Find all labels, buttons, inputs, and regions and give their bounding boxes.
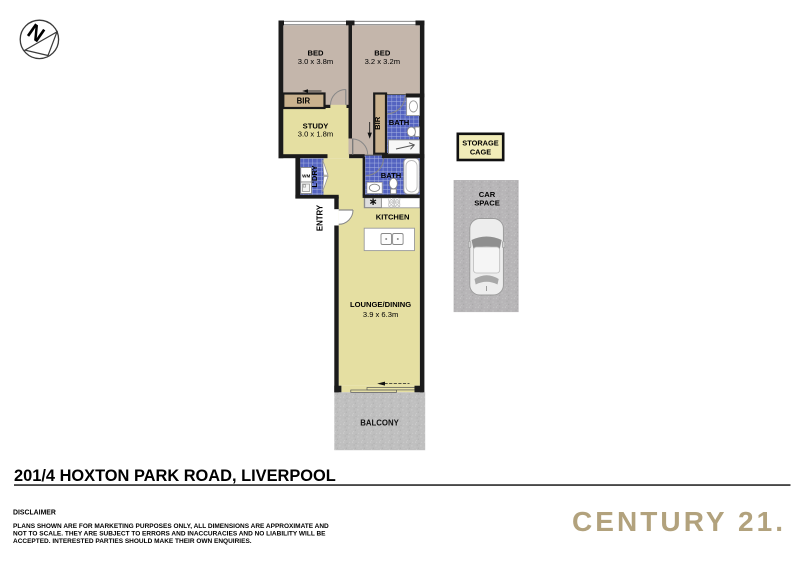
svg-text:201/4 HOXTON PARK ROAD, LIVERP: 201/4 HOXTON PARK ROAD, LIVERPOOL: [14, 467, 336, 485]
svg-text:ACCEPTED. INTERESTED PARTIES S: ACCEPTED. INTERESTED PARTIES SHOULD MAKE…: [13, 538, 252, 545]
svg-text:LOUNGE/DINING: LOUNGE/DINING: [350, 300, 411, 309]
svg-text:3.0 x 3.8m: 3.0 x 3.8m: [298, 57, 333, 66]
svg-text:3.9 x 6.3m: 3.9 x 6.3m: [363, 310, 398, 319]
svg-text:CAR: CAR: [479, 190, 496, 199]
svg-text:BATH: BATH: [389, 118, 410, 127]
svg-text:STORAGE: STORAGE: [462, 139, 498, 148]
svg-text:L'DRY: L'DRY: [310, 165, 319, 187]
svg-text:NOT TO SCALE. THEY ARE SUBJECT: NOT TO SCALE. THEY ARE SUBJECT TO ERRORS…: [13, 530, 326, 537]
svg-text:CENTURY 21.: CENTURY 21.: [572, 506, 786, 537]
svg-text:BIR: BIR: [297, 97, 311, 106]
svg-text:3.0 x 1.8m: 3.0 x 1.8m: [298, 130, 333, 139]
svg-text:N: N: [23, 20, 49, 48]
svg-text:ENTRY: ENTRY: [316, 204, 325, 231]
svg-text:SPACE: SPACE: [474, 199, 500, 208]
svg-text:WM: WM: [302, 174, 310, 179]
svg-text:BALCONY: BALCONY: [360, 418, 399, 427]
svg-text:KITCHEN: KITCHEN: [376, 213, 410, 222]
svg-text:BIR: BIR: [373, 116, 382, 130]
svg-text:CAGE: CAGE: [470, 148, 491, 157]
svg-text:DISCLAIMER: DISCLAIMER: [13, 509, 56, 516]
svg-text:PLANS SHOWN ARE FOR MARKETING: PLANS SHOWN ARE FOR MARKETING PURPOSES O…: [13, 523, 329, 530]
svg-text:3.2 x 3.2m: 3.2 x 3.2m: [365, 57, 400, 66]
